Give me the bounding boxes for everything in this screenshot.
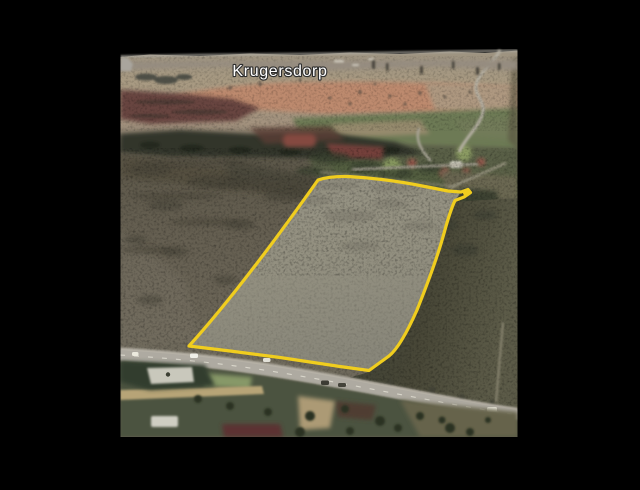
svg-text:Krugersdorp: Krugersdorp	[232, 63, 327, 80]
